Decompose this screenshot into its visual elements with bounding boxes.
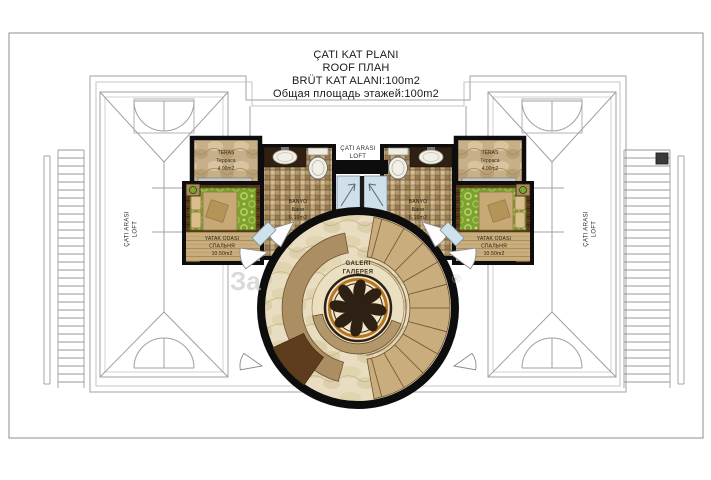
toilet-icon [388,148,408,179]
title-line-4: Общая площадь этажей:100m2 [273,88,439,100]
title-line-2: ROOF ПЛАН [322,62,389,74]
banyo-right-name: BANYO [409,199,428,205]
teras-left-name: TERAS [218,150,235,156]
sink-icon [273,150,297,164]
faucet-icon [281,147,289,150]
pillow [515,212,525,228]
terrace-left: TERAS Терраса 4.00m2 [192,138,260,184]
gallery-medallion [325,275,391,341]
teras-left-ru: Терраса [216,158,235,164]
pillow [191,212,201,228]
bed-left-name: YATAK ODASI [205,236,239,242]
title-line-1: ÇATI KAT PLANI [313,49,398,61]
teras-right-name: TERAS [482,150,499,156]
watermark-text: За [230,266,261,296]
teras-left-area: 4.00m2 [218,166,235,172]
lamp [520,187,527,194]
loft-left-line1: ÇATI ARASI [125,211,131,247]
banyo-left-area: 6.10m2 [289,215,307,221]
terrace-right: TERAS Терраса 4.00m2 [456,138,524,184]
lamp [190,187,197,194]
bed-right-ru: СПАЛЬНЯ [481,244,507,250]
loft-right-line2: LOFT [592,221,598,238]
banyo-right-area: 6.10m2 [409,215,427,221]
bed-left-ru: СПАЛЬНЯ [209,244,235,250]
gallery-circle: GALERI ГАЛЕРЕЯ [261,211,455,405]
banyo-left-ru: Баня [292,207,304,213]
toilet-icon [308,148,328,179]
faucet-icon [427,147,435,150]
floor-plan-drawing: ÇATI KAT PLANI ROOF ПЛАН BRÜT KAT ALANI:… [0,0,711,480]
loft-top-line1: ÇATI ARASI [340,146,376,152]
roof-plan-page: ÇATI KAT PLANI ROOF ПЛАН BRÜT KAT ALANI:… [0,0,711,480]
loft-right-line1: ÇATI ARASI [584,211,590,247]
title-line-3: BRÜT KAT ALANI:100m2 [292,75,420,87]
hall-skylights [332,160,388,214]
teras-right-ru: Терраса [480,158,499,164]
gallery-name-ru: ГАЛЕРЕЯ [343,270,374,276]
loft-left-line2: LOFT [133,221,139,238]
banyo-left-name: BANYO [289,199,308,205]
watermark-reg-icon: ® [452,272,461,286]
sink-icon [419,150,443,164]
teras-right-area: 4.00m2 [482,166,499,172]
loft-top-line2: LOFT [350,154,367,160]
bed-left-area: 10.50m2 [212,251,233,257]
hall-wall [332,160,388,174]
pergola-post [656,153,668,164]
bed-right-area: 10.50m2 [484,251,505,257]
gallery-name-tr: GALERI [345,261,370,267]
banyo-right-ru: Баня [412,207,424,213]
bed-right-name: YATAK ODASI [477,236,511,242]
